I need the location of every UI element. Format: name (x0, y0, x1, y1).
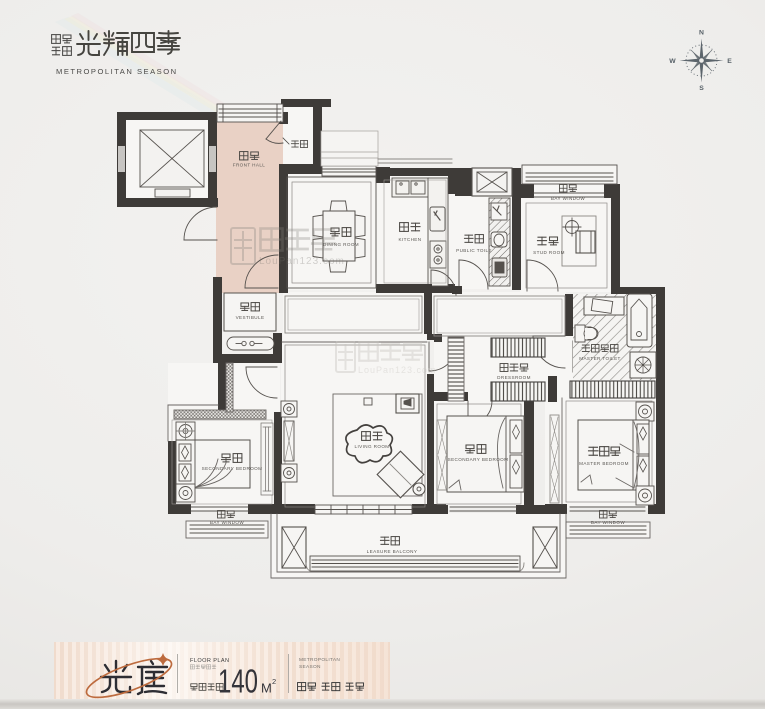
svg-text:W: W (669, 58, 676, 65)
svg-text:VESTIBULE: VESTIBULE (236, 315, 265, 320)
svg-text:MASTER BEDROOM: MASTER BEDROOM (579, 461, 629, 466)
svg-text:M: M (261, 681, 272, 696)
svg-text:SECONDARY BEDROOM: SECONDARY BEDROOM (448, 457, 509, 462)
svg-text:S: S (699, 85, 704, 92)
svg-text:METROPOLITAN: METROPOLITAN (299, 657, 340, 663)
svg-text:2: 2 (272, 677, 276, 686)
svg-text:MASTER TOILET: MASTER TOILET (579, 356, 621, 361)
svg-text:E: E (727, 58, 732, 65)
svg-text:METROPOLITAN SEASON: METROPOLITAN SEASON (56, 67, 178, 76)
svg-text:LouPan123.com: LouPan123.com (259, 256, 345, 267)
svg-text:DRESSROOM: DRESSROOM (497, 375, 531, 380)
svg-text:BAY WINDOW: BAY WINDOW (591, 520, 625, 525)
svg-text:LIVING ROOM: LIVING ROOM (354, 444, 389, 449)
svg-text:LEASURE BALCONY: LEASURE BALCONY (367, 549, 418, 554)
svg-text:PUBLIC TOILE: PUBLIC TOILE (456, 248, 492, 253)
svg-text:SECONDARY BEDROOM: SECONDARY BEDROOM (202, 466, 263, 471)
svg-text:N: N (699, 30, 704, 37)
svg-text:BAY WINDOW: BAY WINDOW (551, 196, 585, 201)
svg-text:SEASON: SEASON (299, 664, 321, 670)
svg-text:LouPan123.com: LouPan123.com (358, 365, 437, 375)
svg-text:FRONT HALL: FRONT HALL (233, 163, 266, 168)
svg-text:KITCHEN: KITCHEN (399, 237, 422, 242)
svg-text:BAY WINDOW: BAY WINDOW (210, 520, 244, 525)
svg-text:STUD ROOM: STUD ROOM (533, 250, 565, 255)
svg-text:140: 140 (218, 663, 258, 700)
